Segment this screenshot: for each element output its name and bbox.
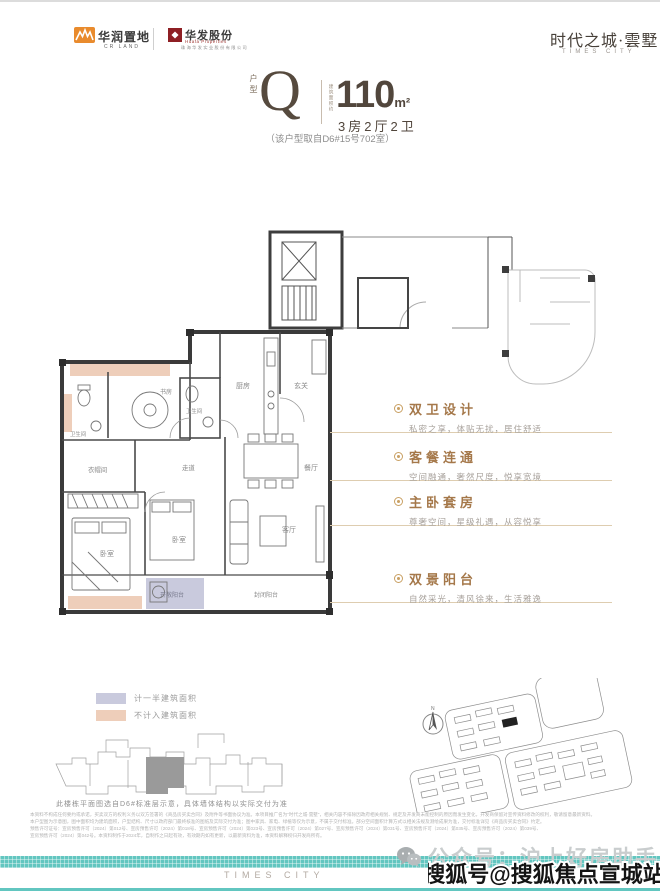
site-buildings — [407, 687, 606, 813]
area-prefix: 建筑面积约 — [328, 84, 334, 112]
unit-type-letter: Q — [259, 62, 301, 120]
room-enclosed-balcony: 封闭阳台 — [254, 591, 278, 599]
highlighted-unit — [146, 757, 184, 794]
room-bedroom-2: 卧室 — [172, 535, 186, 544]
huafa-sub: Huafa Properties — [185, 39, 227, 44]
disclaimer-line: 本户型图为示意图，图中面积均为建筑面积，户型结构、尺寸以政府部门最终核准的图纸及… — [30, 818, 630, 825]
feature-ring-icon — [394, 404, 403, 413]
room-kitchen: 厨房 — [236, 381, 250, 390]
feature-desc: 尊奢空间，星级礼遇，从容悦享 — [409, 516, 620, 528]
legend-swatch-lavender — [96, 693, 126, 704]
legal-disclaimer: 本资料不构成任何要约或承诺，买卖双方的权利义务以双方签署的《商品房买卖合同》及附… — [30, 811, 630, 839]
area-value: 110 — [336, 74, 394, 116]
unit-type-label: 户型 — [248, 74, 259, 96]
feature-desc: 空间融通，奢然尺度，悦享宽境 — [409, 471, 620, 483]
project-brand-sub: TIMES CITY — [562, 49, 636, 55]
legend-item-half-area: 计一半建筑面积 — [96, 693, 197, 704]
room-living: 客厅 — [282, 525, 296, 534]
building-plate-plan — [50, 724, 315, 798]
watermark-text: 搜狐号@搜狐焦点宣城站 — [428, 862, 660, 887]
legend-swatch-pink — [96, 710, 126, 721]
plate-note: 此楼栋平面图选自D6#标准层示意，具体墙体结构以实际交付为准 — [56, 799, 288, 809]
unit-source-note: （该户型取自D6#15号702室） — [230, 131, 430, 145]
crland-name: 华润置地 — [98, 28, 150, 45]
room-study: 书房 — [160, 388, 172, 396]
legend-label: 不计入建筑面积 — [134, 710, 197, 721]
feature-ring-icon — [394, 452, 403, 461]
room-cloakroom: 衣帽间 — [88, 465, 107, 474]
legend-item-excluded-area: 不计入建筑面积 — [96, 710, 197, 721]
disclaimer-line: 宣房预售许可（2024）第042号。本资料制作于2024年，自制作之日起有效，有… — [30, 832, 630, 839]
area-unit: m² — [394, 95, 410, 110]
feature-item-3: 主卧套房 尊奢空间，星级礼遇，从容悦享 — [394, 492, 620, 528]
site-highlighted-building — [502, 717, 518, 728]
floorplan-poster: 华润置地 CR LAND 华发股份 Huafa Properties 珠海华发实… — [0, 0, 660, 896]
crland-logo-icon — [74, 27, 95, 43]
feature-title: 双卫设计 — [409, 399, 477, 418]
feature-ring-icon — [394, 497, 403, 506]
feature-item-4: 双景阳台 自然采光，清风徐来，生活雅逸 — [394, 569, 620, 605]
disclaimer-line: 本资料不构成任何要约或承诺，买卖双方的权利义务以双方签署的《商品房买卖合同》及附… — [30, 811, 630, 818]
feature-ring-icon — [394, 574, 403, 583]
feature-item-1: 双卫设计 私密之享，体贴无扰，居住舒适 — [394, 399, 620, 435]
compass-icon: N — [423, 706, 443, 734]
feature-desc: 自然采光，清风徐来，生活雅逸 — [409, 593, 620, 605]
room-open-balcony: 开敞阳台 — [160, 591, 184, 599]
legend-label: 计一半建筑面积 — [134, 693, 197, 704]
feature-item-2: 客餐连通 空间融通，奢然尺度，悦享宽境 — [394, 447, 620, 483]
logo-divider — [153, 28, 154, 50]
room-dining: 餐厅 — [304, 463, 318, 472]
crland-sub: CR LAND — [104, 44, 140, 50]
core-structure — [270, 232, 512, 328]
room-bath-2: 卫生间 — [70, 430, 86, 438]
unit-header-divider — [321, 80, 322, 124]
huafa-logo-icon — [168, 28, 182, 42]
feature-title: 双景阳台 — [409, 569, 477, 588]
project-brand-name: 时代之城·雲墅 — [550, 27, 658, 51]
svg-text:N: N — [431, 706, 435, 712]
room-bath-1: 卫生间 — [186, 407, 202, 415]
top-border — [0, 0, 660, 2]
feature-desc: 私密之享，体贴无扰，居住舒适 — [409, 423, 620, 435]
huafa-tagline: 珠海华发实业股份有限公司 — [181, 45, 248, 51]
neighbor-unit-outline — [502, 266, 595, 384]
footer-brand: TIMES CITY — [224, 870, 325, 880]
room-corridor: 走道 — [182, 463, 195, 472]
feature-title: 客餐连通 — [409, 447, 477, 466]
sohu-watermark: 搜狐号@搜狐焦点宣城站 — [428, 855, 660, 893]
feature-title: 主卧套房 — [409, 492, 477, 511]
room-master-bedroom: 卧室 — [100, 549, 114, 558]
wechat-icon — [396, 846, 422, 868]
room-foyer: 玄关 — [294, 381, 308, 390]
disclaimer-line: 预售许可证号：宣房预售许可（2024）第012号、宣房预售许可（2024）第01… — [30, 825, 630, 832]
site-plan: N — [398, 678, 648, 813]
unit-area: 110m² — [336, 74, 410, 117]
